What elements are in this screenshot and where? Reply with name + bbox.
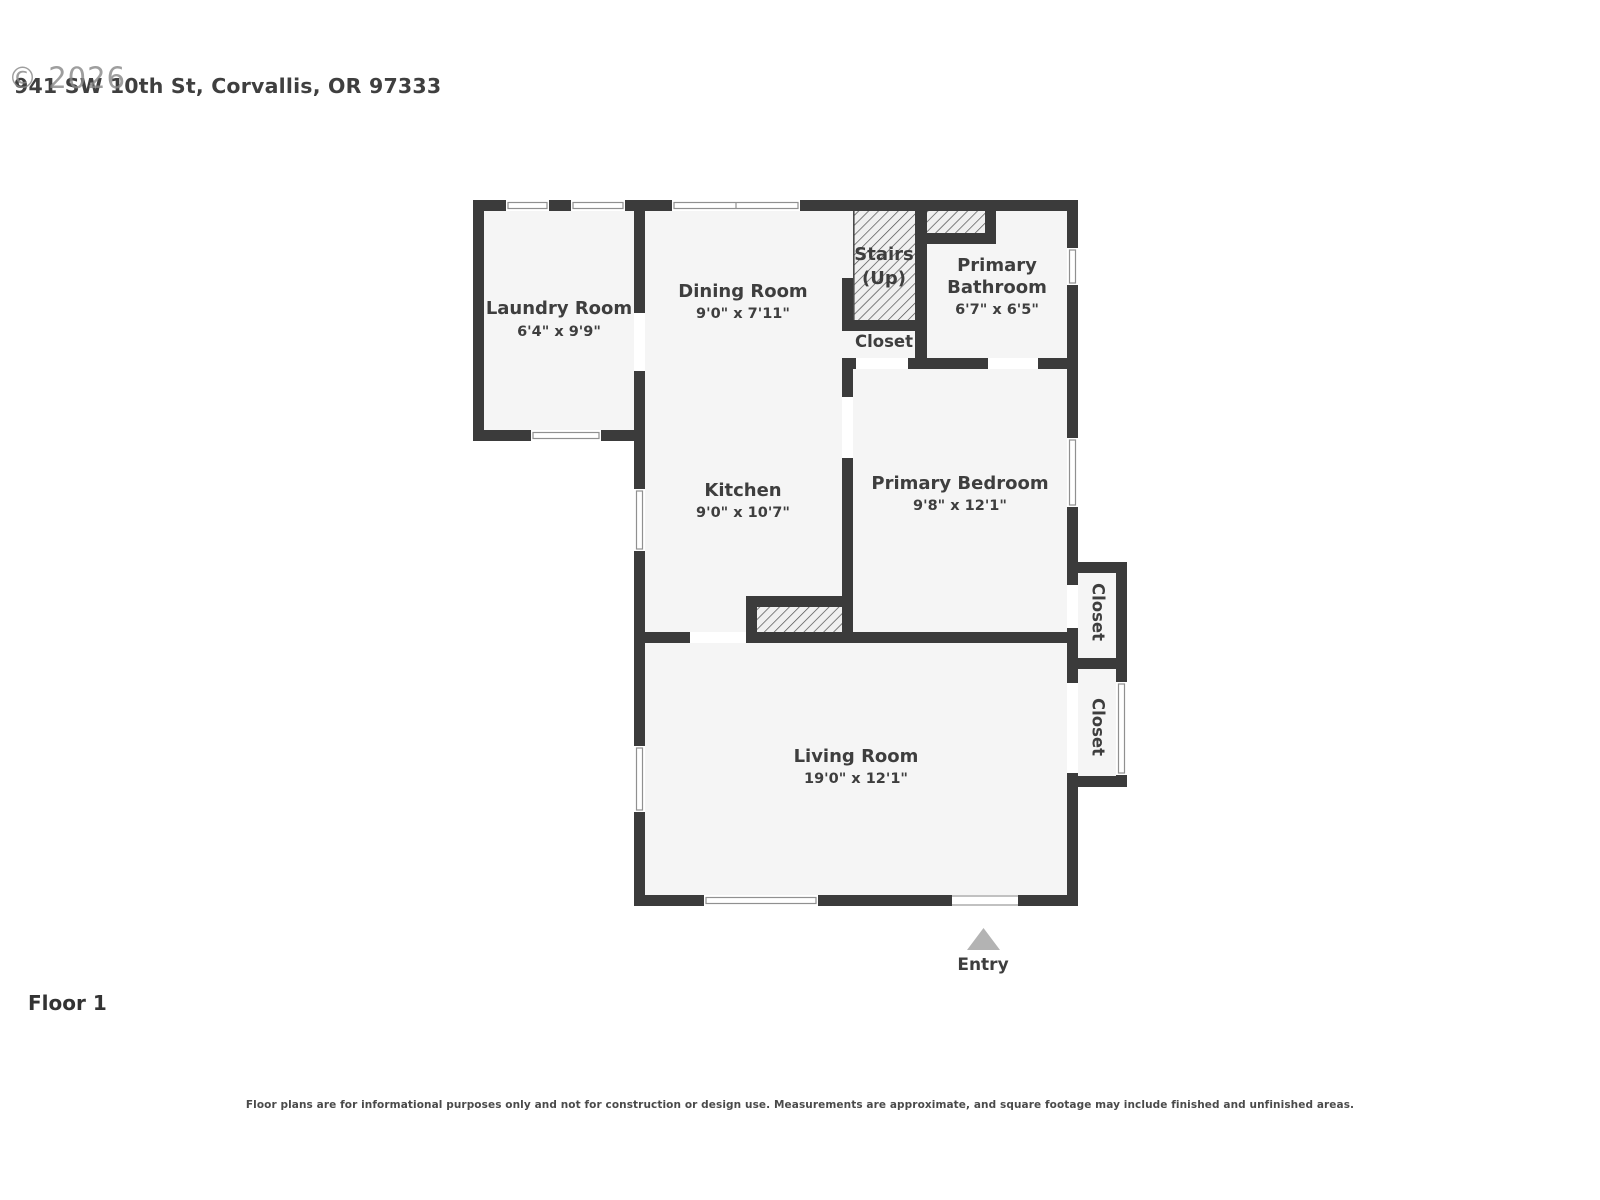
door-bedroom xyxy=(842,397,853,458)
window-closet-lower-right xyxy=(1116,682,1127,775)
wall-closet-upper-right xyxy=(1116,562,1127,669)
entry-arrow-icon xyxy=(967,928,1000,950)
stairs-label-line2: (Up) xyxy=(862,268,906,289)
dining-kitchen-floor xyxy=(639,205,848,638)
window-living-left xyxy=(634,746,645,812)
wall-basement-hatch-top xyxy=(746,596,853,607)
floor-label: Floor 1 xyxy=(28,991,107,1015)
basement-stair-hatch xyxy=(757,607,842,632)
laundry-room-dims: 6'4" x 9'9" xyxy=(517,324,601,340)
living-floor xyxy=(639,637,1073,900)
opening-kitchen-living xyxy=(690,632,746,643)
window-bathroom-right xyxy=(1067,248,1078,285)
bedroom-label: Primary Bedroom xyxy=(871,473,1048,494)
bathroom-label-line1: Primary xyxy=(957,255,1037,276)
kitchen-dims: 9'0" x 10'7" xyxy=(696,505,790,521)
stairs-up-hatch xyxy=(853,211,915,320)
laundry-floor xyxy=(478,205,639,435)
window-laundry-bottom xyxy=(531,430,601,441)
closet-upper-label: Closet xyxy=(1089,583,1108,641)
wall-east xyxy=(1067,200,1078,906)
living-room-label: Living Room xyxy=(794,746,919,767)
opening-closet-lower xyxy=(1067,683,1078,773)
laundry-room-label: Laundry Room xyxy=(486,298,632,319)
disclaimer: Floor plans are for informational purpos… xyxy=(0,1099,1600,1111)
bathroom-stair-hatch xyxy=(927,211,985,233)
window-laundry-top-1 xyxy=(506,200,549,211)
wall-stairs-bath-divider xyxy=(915,200,927,369)
wall-bath-hatch-right xyxy=(985,200,996,244)
bathroom-dims: 6'7" x 6'5" xyxy=(955,302,1039,318)
door-closet-upper xyxy=(1067,585,1078,628)
window-kitchen-left xyxy=(634,489,645,551)
dining-room-dims: 9'0" x 7'11" xyxy=(696,306,790,322)
wall-bath-hatch-bottom xyxy=(915,233,996,244)
window-laundry-top-2 xyxy=(571,200,625,211)
stairs-closet-label: Closet xyxy=(855,332,913,351)
kitchen-label: Kitchen xyxy=(704,480,781,501)
stairs-label-line1: Stairs xyxy=(854,244,913,265)
door-stairs-closet xyxy=(856,358,908,369)
window-dining-top xyxy=(672,200,800,211)
entry-opening xyxy=(952,895,1018,906)
window-living-bottom xyxy=(704,895,818,906)
window-bedroom-right xyxy=(1067,438,1078,507)
bedroom-dims: 9'8" x 12'1" xyxy=(913,498,1007,514)
entry-label: Entry xyxy=(957,955,1008,975)
floorplan-svg: Entry Laundry Room 6'4" x 9'9" Dining Ro… xyxy=(0,0,1600,1200)
living-room-dims: 19'0" x 12'1" xyxy=(804,771,908,787)
wall-closet-lower-bottom xyxy=(1067,776,1127,787)
door-bathroom xyxy=(988,358,1038,369)
wall-basement-hatch-left xyxy=(746,596,757,643)
wall-stairs-closet-divider xyxy=(842,320,915,331)
bathroom-label-line2: Bathroom xyxy=(947,277,1047,298)
wall-laundry-left xyxy=(473,200,484,441)
door-laundry xyxy=(634,313,645,371)
entry-marker: Entry xyxy=(957,928,1008,975)
closet-lower-label: Closet xyxy=(1089,698,1108,756)
dining-room-label: Dining Room xyxy=(678,281,807,302)
